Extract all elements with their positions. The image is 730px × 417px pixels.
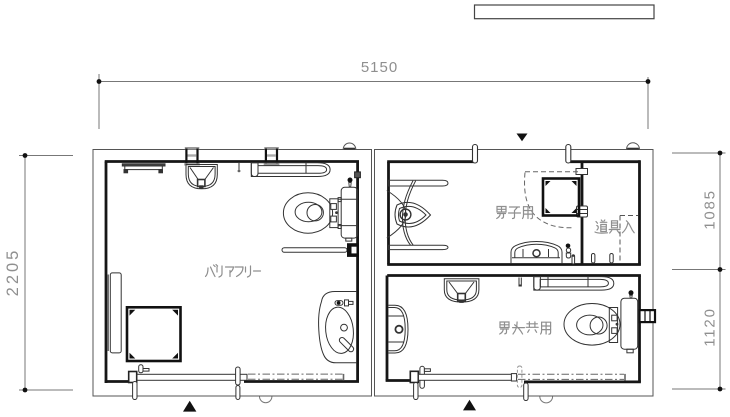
svg-text:1120: 1120 [702,307,719,346]
svg-text:2205: 2205 [4,248,22,297]
svg-text:5150: 5150 [361,59,398,76]
svg-text:1085: 1085 [702,189,719,230]
